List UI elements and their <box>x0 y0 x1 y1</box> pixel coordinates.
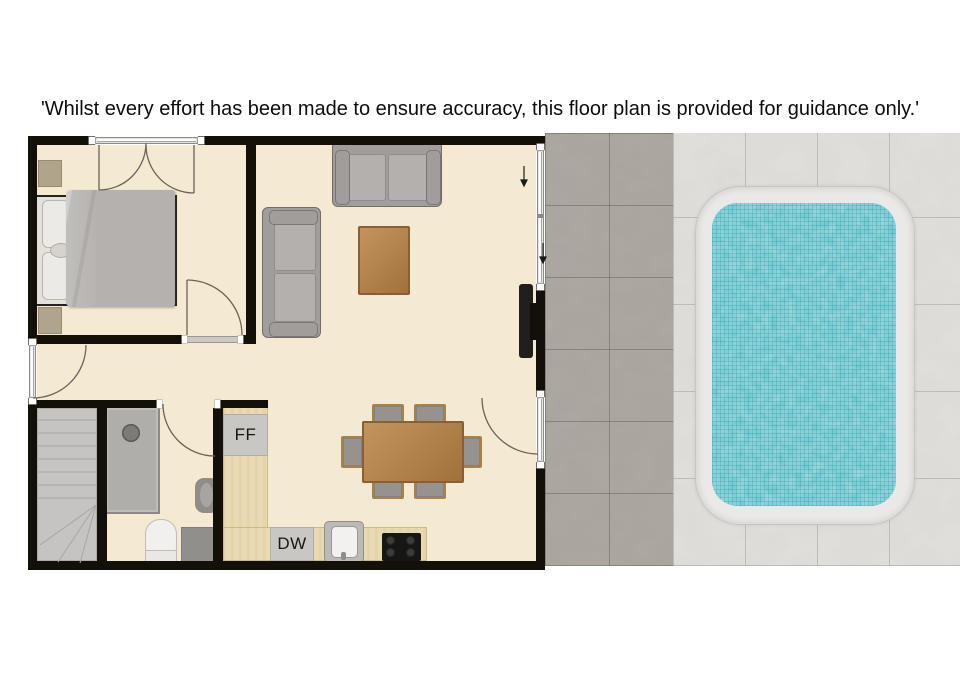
pool-mosaic-grid <box>712 203 896 506</box>
jamb <box>89 137 95 144</box>
wall-segment <box>28 398 37 570</box>
bathroom-unit <box>181 527 217 564</box>
disclaimer-text: 'Whilst every effort has been made to en… <box>0 98 960 121</box>
dining-table <box>362 421 464 483</box>
patio-dark-tiles <box>545 133 673 566</box>
cooker-hob <box>382 533 421 561</box>
jamb <box>29 339 36 345</box>
bed-blanket <box>66 190 175 307</box>
jamb <box>182 336 187 343</box>
swimming-pool <box>712 203 896 506</box>
jamb <box>537 284 544 290</box>
jamb <box>198 137 204 144</box>
dishwasher: DW <box>270 527 314 561</box>
jamb <box>157 400 162 408</box>
nightstand <box>38 160 62 187</box>
fridge-freezer: FF <box>223 414 268 456</box>
staircase <box>37 408 97 561</box>
jamb <box>537 462 544 468</box>
floorplan-page: 'Whilst every effort has been made to en… <box>0 0 960 679</box>
jamb <box>537 144 544 150</box>
wall-bathroom-divider <box>213 408 223 561</box>
wall-segment <box>536 462 545 570</box>
wall-bedroom-divider <box>246 136 256 344</box>
wall-segment <box>37 400 162 408</box>
jamb <box>537 391 544 397</box>
patio-door <box>537 397 544 462</box>
window-mullion <box>537 214 544 218</box>
sofa-two-seater-side <box>262 207 321 338</box>
sink-tap <box>341 552 346 560</box>
toilet-bowl <box>145 519 177 554</box>
wall-segment <box>536 284 545 397</box>
wall-segment <box>28 136 37 345</box>
sofa-armrest <box>335 150 350 205</box>
shower-enclosure <box>104 406 160 514</box>
dishwasher-label: DW <box>277 534 306 554</box>
wall-segment <box>215 400 268 408</box>
jamb <box>215 400 220 408</box>
tile-grout-lines <box>545 133 673 566</box>
sofa-armrest <box>269 210 318 225</box>
fridge-freezer-label: FF <box>235 425 257 445</box>
wall-segment <box>28 136 95 145</box>
shower-head <box>122 424 140 442</box>
kitchen-sink <box>324 521 364 563</box>
wall-segment <box>243 335 256 344</box>
front-door <box>29 345 36 398</box>
coffee-table <box>358 226 410 295</box>
jamb <box>238 336 243 343</box>
dining-chair <box>341 436 364 468</box>
bedroom-window <box>95 137 198 144</box>
sofa-armrest <box>269 322 318 337</box>
wall-segment <box>28 561 545 570</box>
wall-stairs-divider <box>97 408 107 561</box>
bedroom-door-threshold <box>182 336 243 343</box>
sofa-two-seater <box>332 141 442 207</box>
nightstand <box>38 307 62 334</box>
wall-segment <box>28 335 182 344</box>
sofa-armrest <box>426 150 441 205</box>
jamb <box>29 398 36 404</box>
